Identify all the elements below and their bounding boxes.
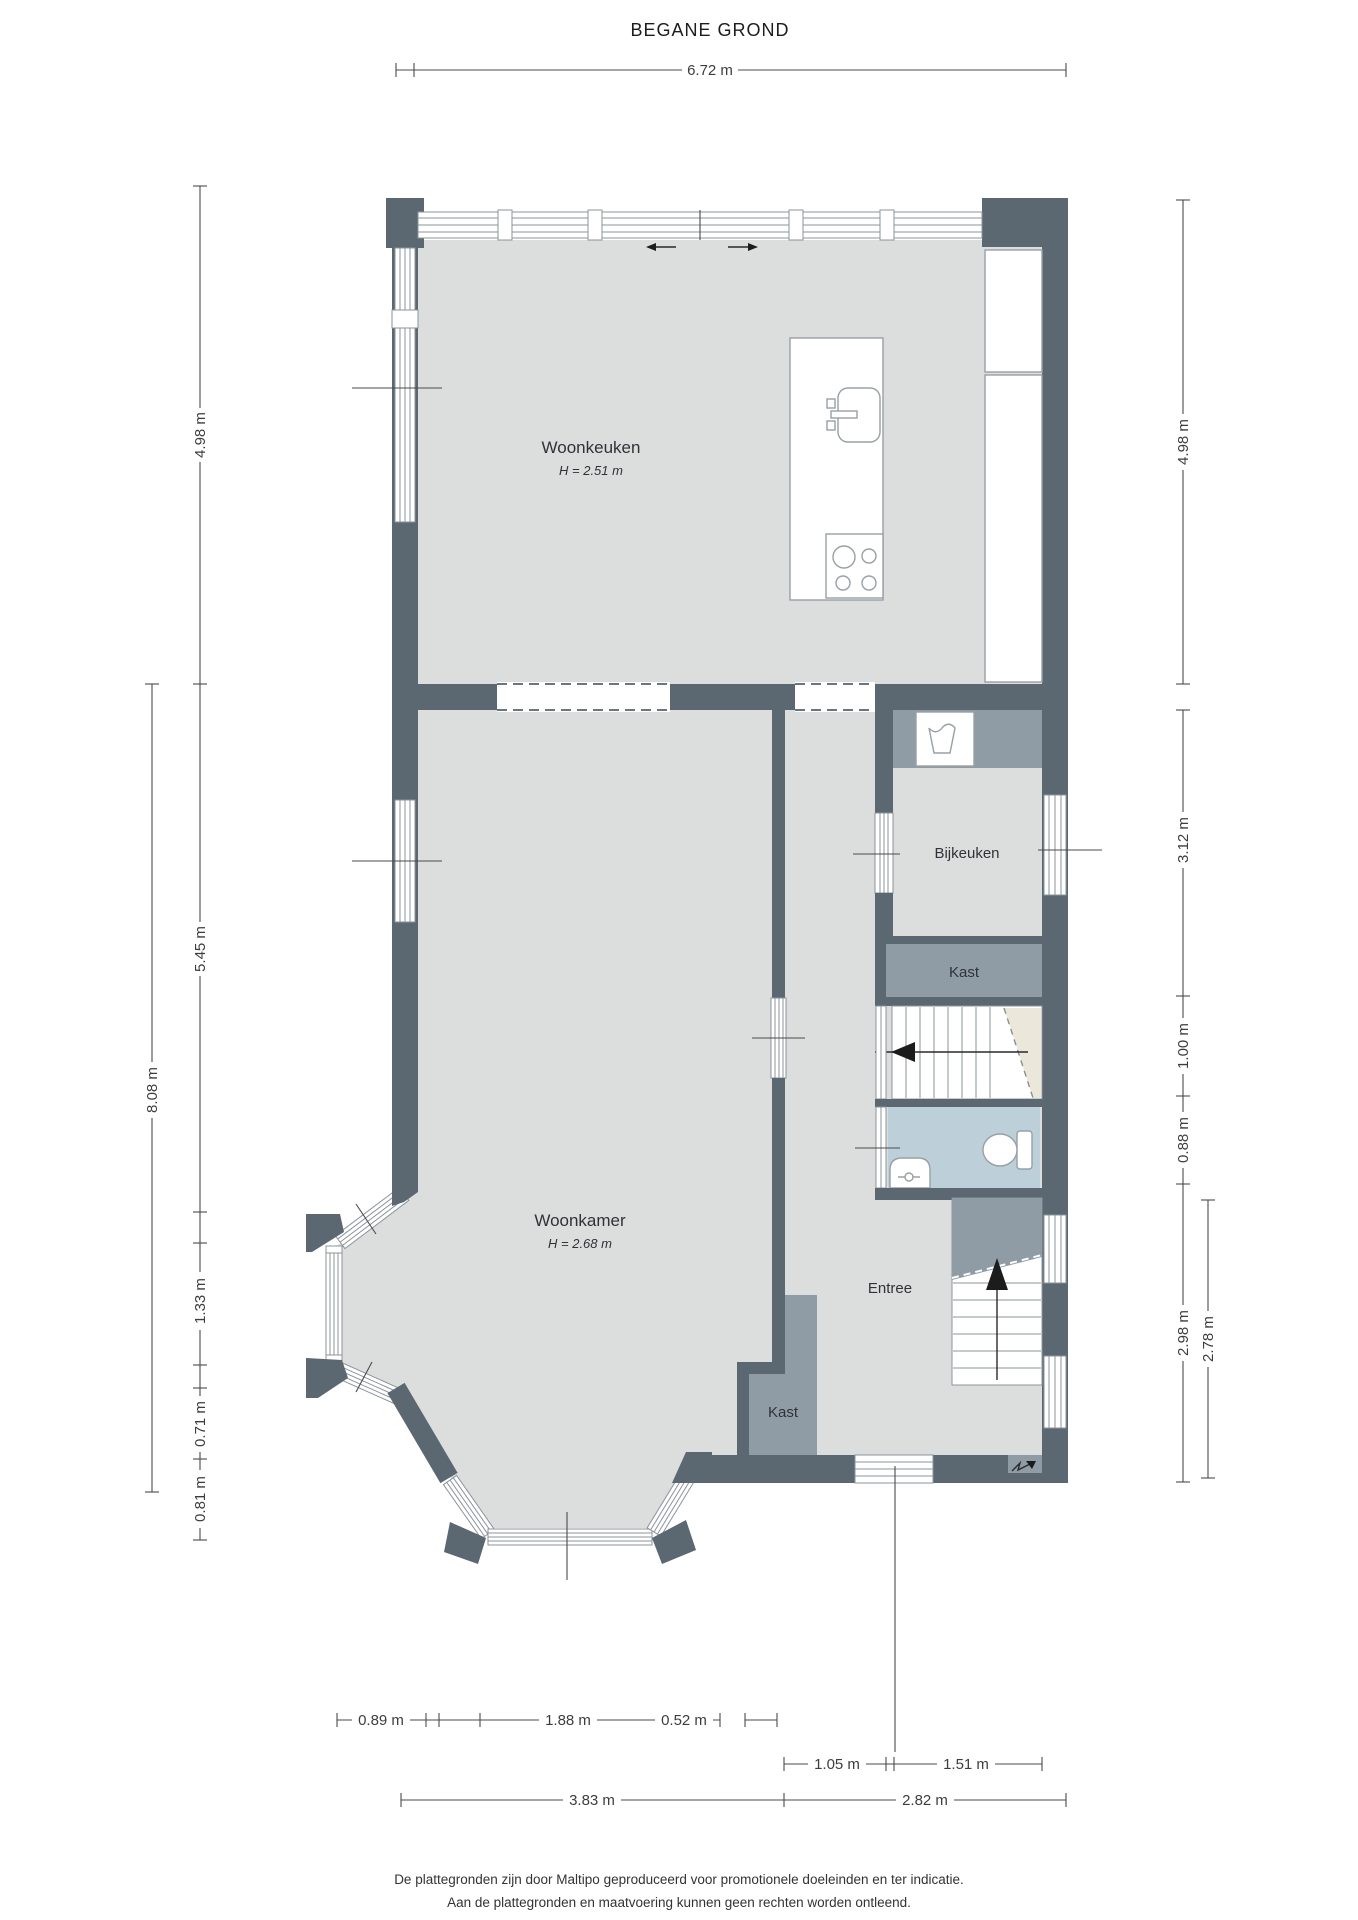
passage-opening-2: [795, 682, 875, 712]
front-door: [855, 1455, 933, 1483]
dim-bottom-3-83: 3.83 m: [569, 1792, 615, 1809]
washing-machine-icon: [916, 712, 974, 766]
toilet-icon: [983, 1131, 1032, 1169]
bay-window-front: [488, 1529, 652, 1545]
room-label-bijkeuken: Bijkeuken: [934, 845, 999, 862]
dim-right-keuken: 4.98 m: [1175, 419, 1192, 465]
window-right-bijkeuken: [1038, 795, 1102, 895]
wall-stairs-toilet: [875, 1099, 1042, 1107]
room-height-woonkamer: H = 2.68 m: [548, 1236, 612, 1251]
room-label-woonkamer: Woonkamer: [534, 1211, 626, 1230]
passage-opening-1: [497, 682, 670, 712]
footer-line-2: Aan de plattegronden en maatvoering kunn…: [447, 1895, 911, 1910]
window-right-entree-2: [1044, 1356, 1066, 1428]
bay-window-left: [326, 1246, 342, 1362]
corner-top-right: [982, 198, 1068, 247]
page-title: BEGANE GROND: [630, 20, 789, 40]
room-label-entree: Entree: [868, 1280, 912, 1297]
dim-top-width: 6.72 m: [687, 62, 733, 79]
dim-bottom-1-51: 1.51 m: [943, 1756, 989, 1773]
dimension-right: 4.98 m 3.12 m 1.00 m 0.88 m 2.98 m 2.78 …: [1175, 200, 1217, 1482]
dimension-left-inner: 4.98 m 5.45 m 1.33 m 0.71 m 0.81 m: [192, 186, 209, 1540]
floor-plan-svg: BEGANE GROND 6.72 m: [0, 0, 1358, 1920]
entry-arrow-icon: [1008, 1455, 1042, 1473]
stove-icon: [826, 534, 883, 598]
dim-left-total: 8.08 m: [144, 1067, 161, 1113]
dim-bottom-2-82: 2.82 m: [902, 1792, 948, 1809]
window-top-band: [418, 210, 982, 240]
dim-right-bijkeuken: 3.12 m: [1175, 817, 1192, 863]
floor-plan-page: BEGANE GROND 6.72 m: [0, 0, 1358, 1920]
dimension-top: 6.72 m: [396, 62, 1066, 79]
divider-wall: [392, 682, 1042, 712]
footer-line-1: De plattegronden zijn door Maltipo gepro…: [394, 1872, 964, 1887]
stairs-upper: [875, 1006, 1042, 1099]
basin-icon: [890, 1158, 930, 1188]
dim-right-trap: 1.00 m: [1175, 1023, 1192, 1069]
dimension-left-outer: 8.08 m: [144, 684, 161, 1492]
dim-right-entree-binnen: 2.78 m: [1200, 1316, 1217, 1362]
dimension-bottom-row3: 3.83 m 2.82 m: [401, 1790, 1066, 1809]
bay-corner-2: [306, 1358, 348, 1398]
dim-left-erker-hoek2: 0.81 m: [192, 1476, 209, 1522]
dim-right-entree: 2.98 m: [1175, 1310, 1192, 1356]
dim-left-erker-zijde: 1.33 m: [192, 1278, 209, 1324]
room-label-kast-boven: Kast: [949, 964, 980, 981]
window-right-entree-1: [1044, 1215, 1066, 1283]
dim-bottom-1-88: 1.88 m: [545, 1712, 591, 1729]
room-label-woonkeuken: Woonkeuken: [542, 438, 641, 457]
stairs-main: [952, 1198, 1042, 1385]
kitchen-counters: [985, 250, 1042, 682]
dimension-bottom-row2: 1.05 m 1.51 m: [784, 1754, 1042, 1773]
room-height-woonkeuken: H = 2.51 m: [559, 463, 623, 478]
kitchen-island: [790, 338, 883, 600]
floor-area: [334, 240, 1042, 1528]
dimension-bottom-row1: 0.89 m 1.88 m 0.52 m: [337, 1710, 777, 1729]
dim-bottom-1-05: 1.05 m: [814, 1756, 860, 1773]
dim-bottom-0-89: 0.89 m: [358, 1712, 404, 1729]
dim-left-woonkamer: 5.45 m: [192, 926, 209, 972]
dim-left-erker-hoek1: 0.71 m: [192, 1401, 209, 1447]
dim-left-keuken: 4.98 m: [192, 412, 209, 458]
dim-bottom-0-52: 0.52 m: [661, 1712, 707, 1729]
dim-right-toilet: 0.88 m: [1175, 1117, 1192, 1163]
room-label-kast-entree: Kast: [768, 1404, 799, 1421]
